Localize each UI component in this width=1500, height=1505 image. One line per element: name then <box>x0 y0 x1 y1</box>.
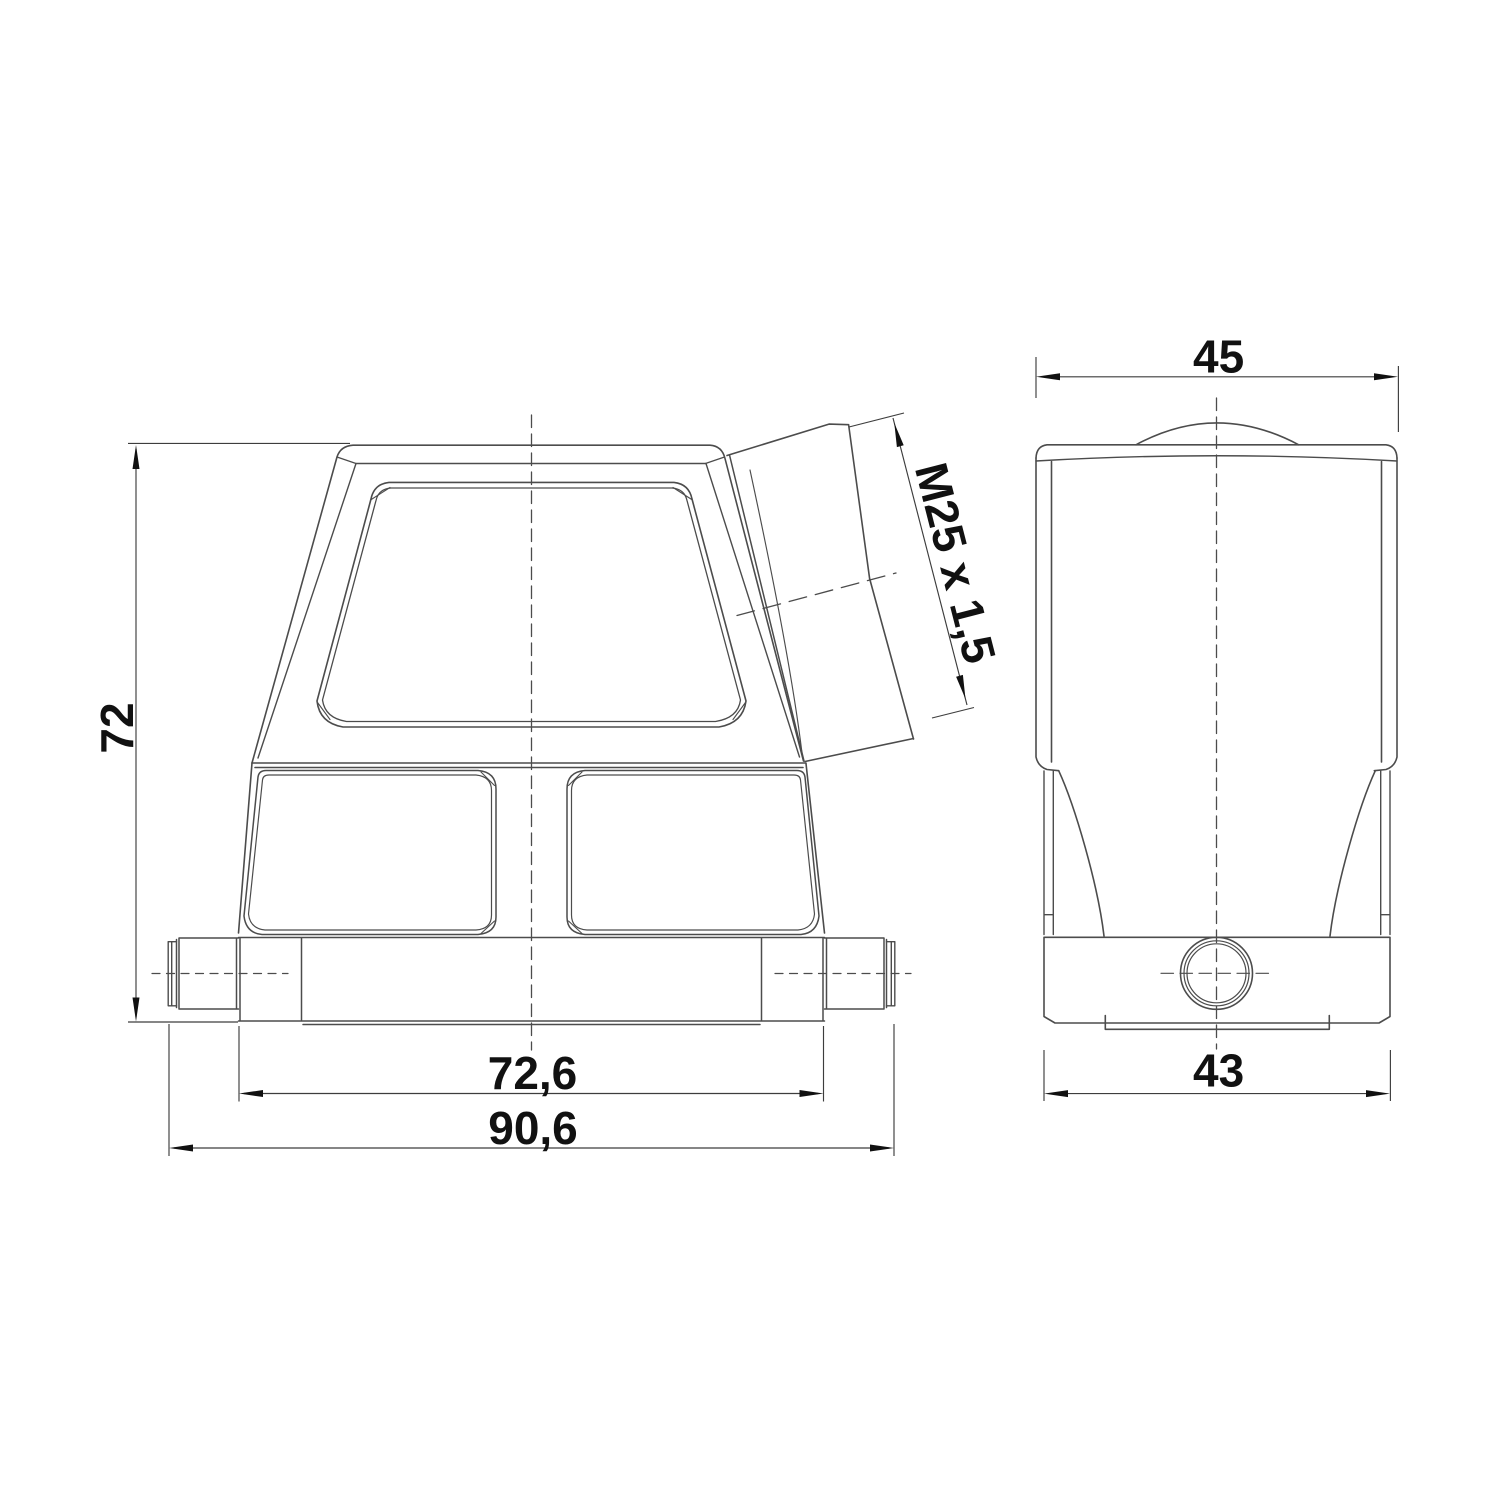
svg-text:43: 43 <box>1193 1045 1244 1097</box>
svg-text:M25 x 1,5: M25 x 1,5 <box>905 457 1006 668</box>
svg-text:72: 72 <box>91 702 143 753</box>
svg-text:72,6: 72,6 <box>488 1047 578 1099</box>
svg-text:45: 45 <box>1193 331 1244 383</box>
svg-text:90,6: 90,6 <box>488 1102 578 1154</box>
